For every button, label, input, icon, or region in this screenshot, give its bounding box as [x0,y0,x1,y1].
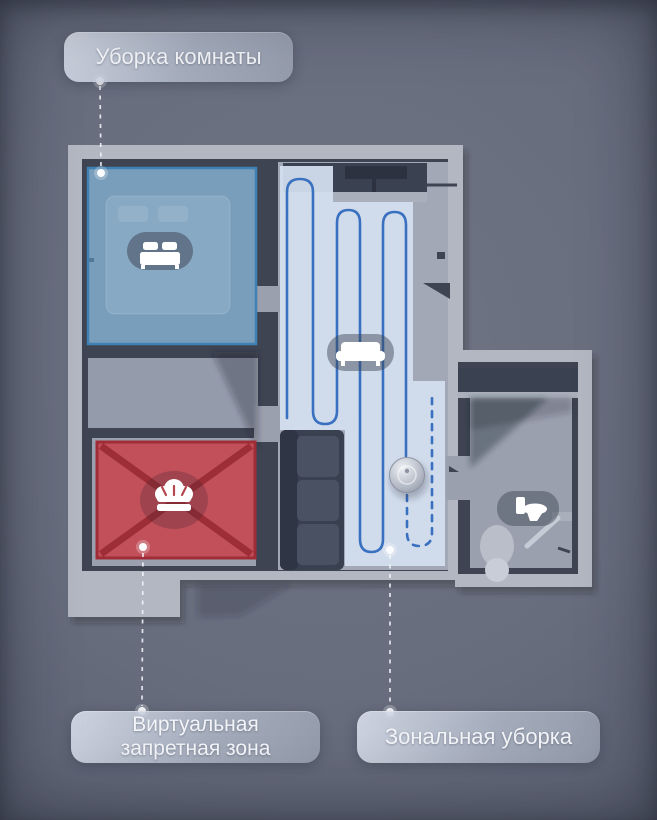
switch-mark [437,252,445,259]
label-virtual-zone-line1: Виртуальная [132,713,259,737]
door-gap-bedroom [254,286,280,312]
leader-room-cleaning [100,86,101,168]
floor-plan [0,0,657,820]
label-zonal-cleaning: Зональная уборка [357,711,600,763]
label-room-cleaning-text: Уборка комнаты [95,44,261,70]
sofa-cushion [297,524,339,565]
pillow-outline [158,206,188,222]
label-virtual-no-go-zone: Виртуальная запретная зона [71,711,320,763]
pillow-outline [118,206,148,222]
robot-vacuum-feature-poster: Уборка комнаты Виртуальная запретная зон… [0,0,657,820]
sofa-back [280,430,298,570]
dot [383,543,397,557]
bedroom-icon-pill [127,232,193,270]
recess-furniture [345,166,407,179]
robot-body [390,458,425,493]
toilet-3d-base [485,558,509,582]
sofa-cushion [297,436,339,477]
recess-opening [458,368,578,392]
robot-button [405,469,409,473]
living-icon-pill [327,334,394,371]
kitchen-icon-pill [140,471,208,529]
leader-no-go [142,553,143,706]
label-room-cleaning: Уборка комнаты [64,32,293,82]
sofa [280,430,344,570]
label-virtual-zone-line2: запретная зона [121,737,271,761]
dot [94,166,108,180]
label-zonal-cleaning-text: Зональная уборка [385,724,572,750]
bathwing-top-recess [458,368,578,398]
recess-ledge [458,392,578,398]
bathroom-icon-pill [497,491,559,526]
sofa-cushion [297,480,339,521]
dot [136,540,150,554]
